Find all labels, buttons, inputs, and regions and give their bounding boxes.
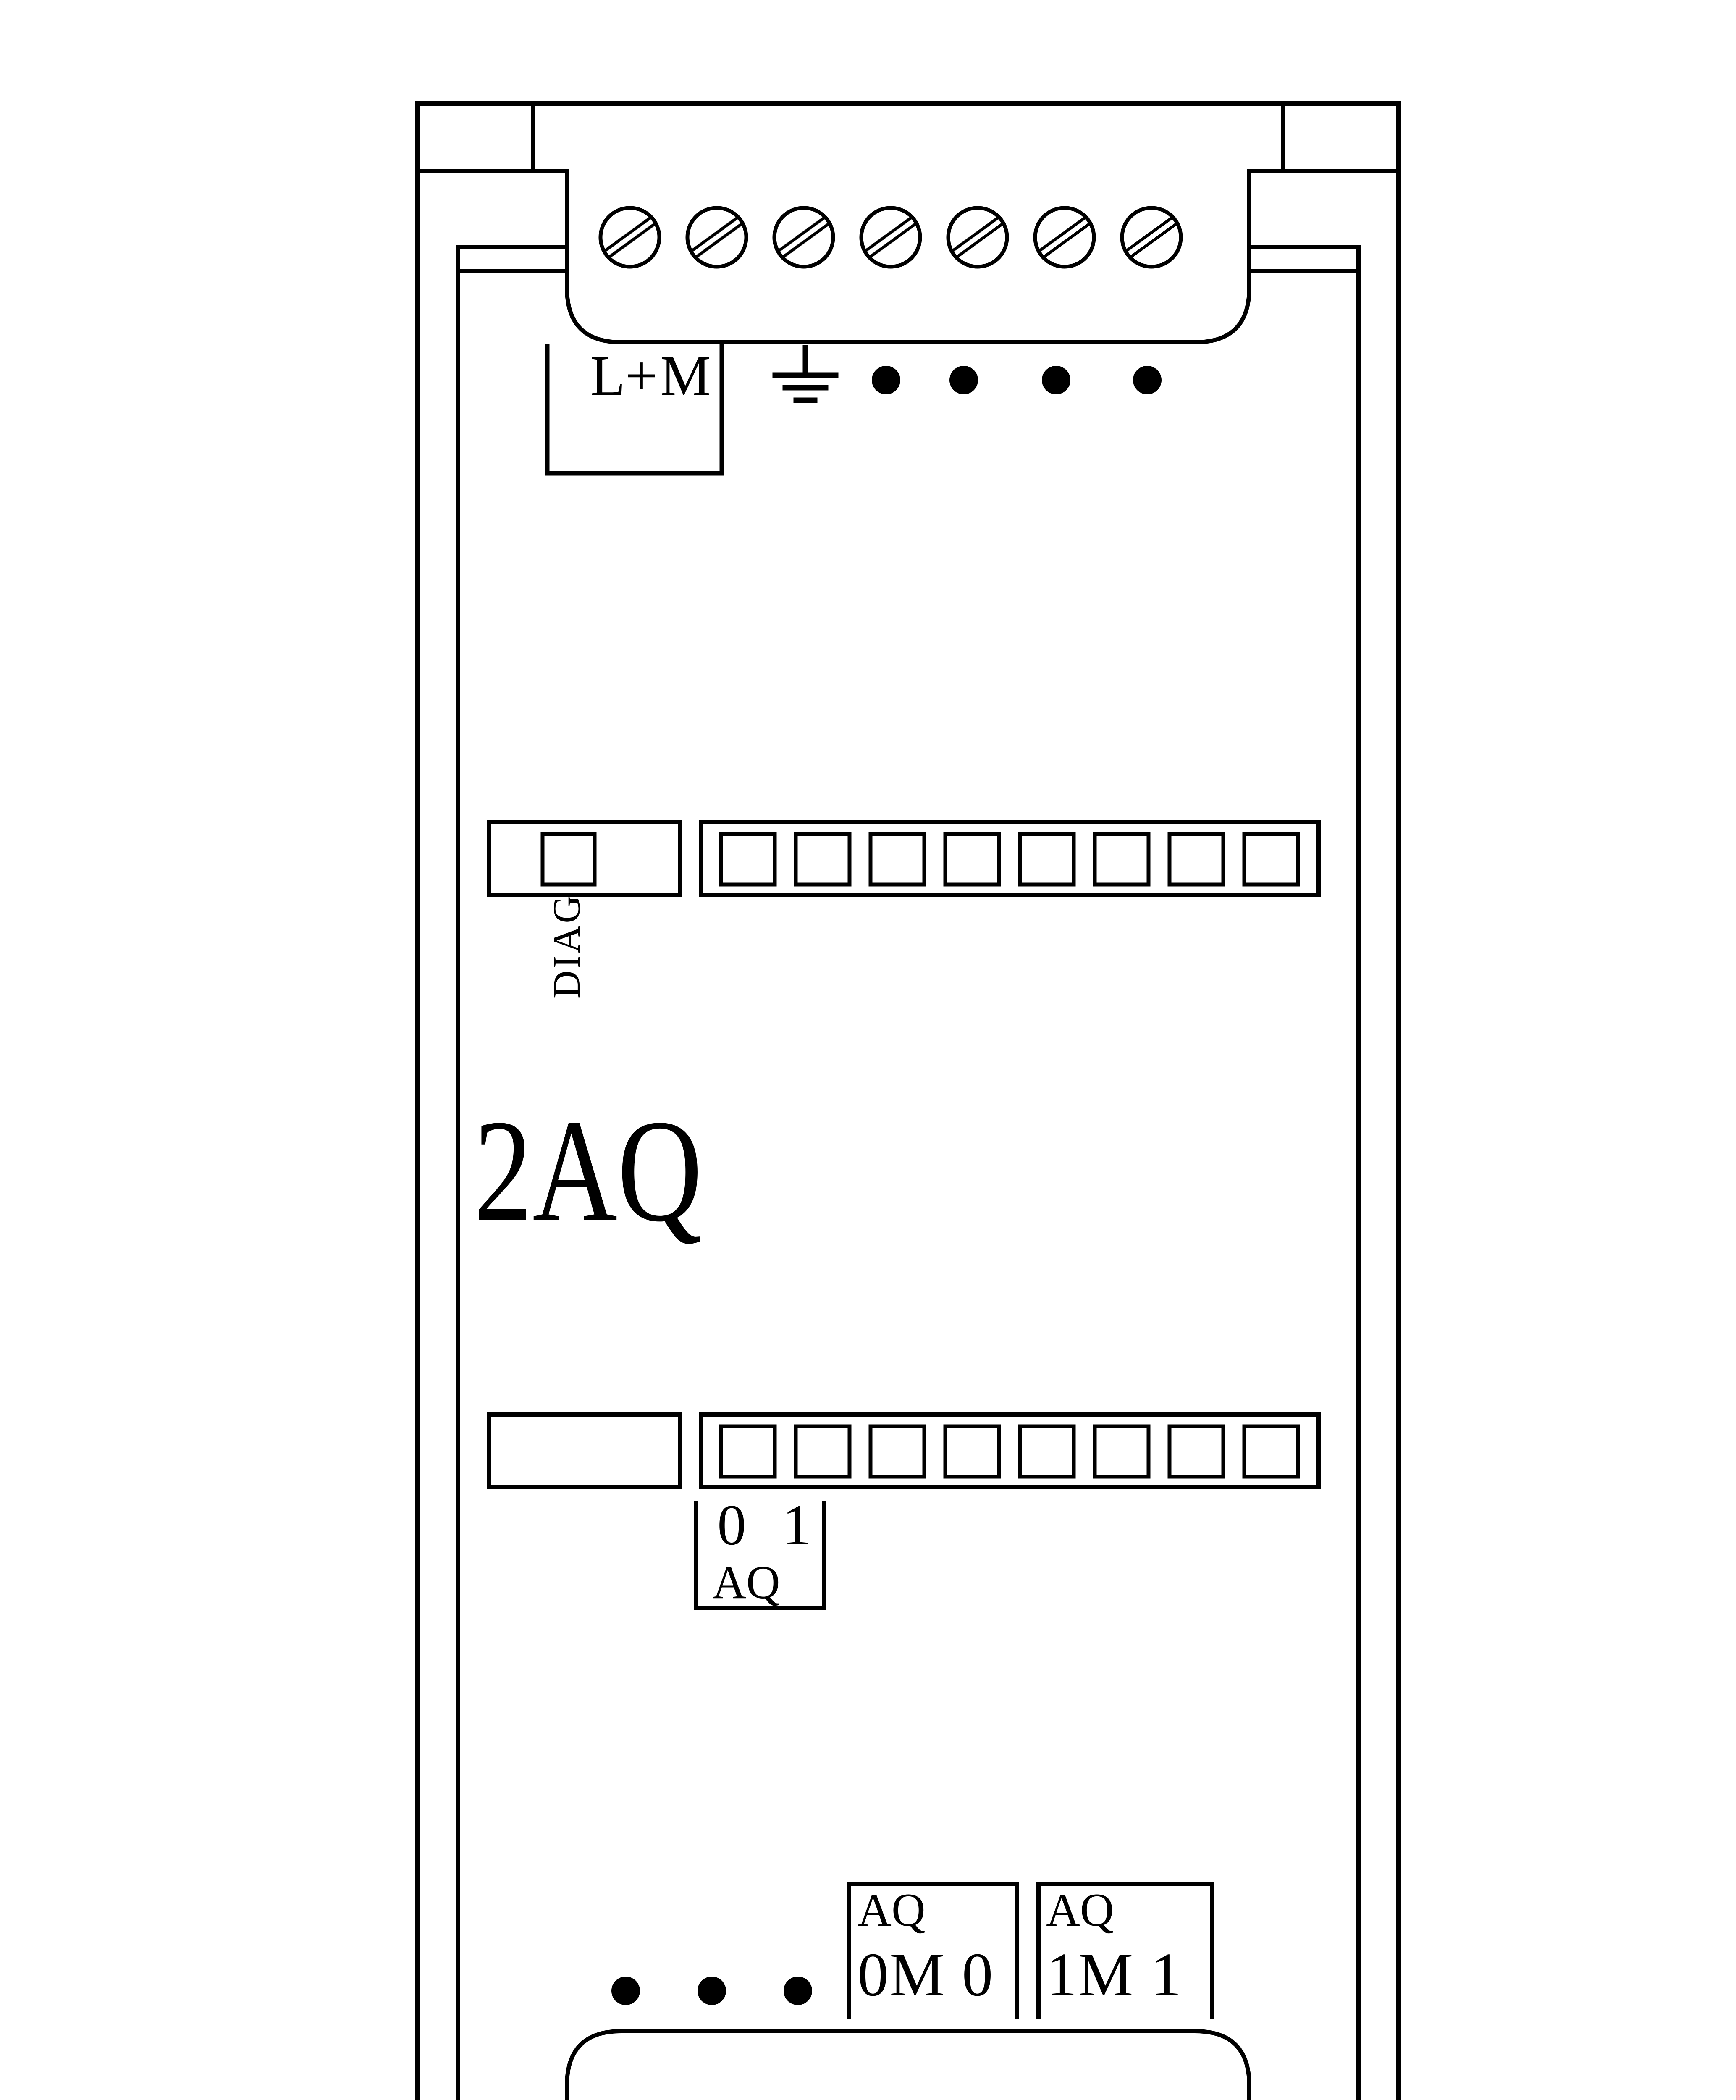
led-cell: [1020, 834, 1074, 885]
led-cell: [721, 1426, 775, 1477]
screw-terminal: [850, 196, 932, 278]
led-cell: [1170, 1426, 1223, 1477]
screw-terminal: [763, 196, 845, 278]
bottom-terminal-bay: [567, 2031, 1249, 2100]
led-cell: [1244, 1426, 1298, 1477]
module-line-art: [0, 0, 1736, 2100]
led-cell: [796, 1426, 850, 1477]
spare-led-box: [489, 1415, 680, 1487]
earth-ground-icon: [775, 348, 836, 400]
channel-0-digit: 0: [717, 1496, 746, 1554]
bottom-terminal-dots: [611, 1977, 812, 2005]
output1-group-label: AQ: [1046, 1887, 1114, 1934]
led-cell: [871, 1426, 924, 1477]
output0-group-label: AQ: [858, 1887, 926, 1934]
led-cells-row1: [721, 834, 1298, 885]
power-positive-label: L+: [590, 347, 658, 406]
led-cell: [1244, 834, 1298, 885]
terminal-dot: [872, 366, 900, 394]
power-terminal-labels: L+ M: [547, 347, 722, 406]
screw-terminal: [936, 196, 1019, 278]
led-cell: [1095, 834, 1149, 885]
diag-label: DIAG: [542, 895, 591, 996]
led-cell: [1170, 834, 1223, 885]
led-cell: [945, 1426, 999, 1477]
terminal-dot: [1133, 366, 1162, 394]
channel-1-digit: 1: [782, 1496, 811, 1554]
screw-terminal: [676, 196, 758, 278]
screw-terminal: [850, 2093, 932, 2100]
screw-terminal: [1110, 2093, 1193, 2100]
led-cell: [1095, 1426, 1149, 1477]
terminal-dot: [698, 1977, 726, 2005]
led-cell: [1020, 1426, 1074, 1477]
terminal-dot: [949, 366, 978, 394]
screw-terminal: [763, 2093, 845, 2100]
screw-terminal: [936, 2093, 1019, 2100]
screw-terminal: [1023, 2093, 1106, 2100]
wiring-diagram-page: L+ M DIAG 2AQ 0 1 AQ AQ 0M 0 AQ 1M 1 头条 …: [0, 0, 1736, 2100]
bottom-screw-terminals: [589, 2093, 1193, 2100]
power-common-label: M: [660, 347, 711, 406]
top-screw-terminals: [589, 196, 1193, 278]
terminal-dot: [611, 1977, 640, 2005]
output1-terminal-labels: 1M 1: [1046, 1944, 1183, 2006]
led-cell: [721, 834, 775, 885]
diag-led: [543, 834, 595, 885]
module-model-label: 2AQ: [474, 1097, 702, 1244]
channel-number-labels: 0 1: [696, 1496, 824, 1554]
led-cells-row2: [721, 1426, 1298, 1477]
led-cell: [871, 834, 924, 885]
screw-terminal: [589, 2093, 671, 2100]
terminal-dot: [1042, 366, 1070, 394]
led-cell: [796, 834, 850, 885]
screw-terminal: [676, 2093, 758, 2100]
screw-terminal: [1023, 196, 1106, 278]
screw-terminal: [1110, 196, 1193, 278]
output0-terminal-labels: 0M 0: [858, 1944, 994, 2006]
top-terminal-dots: [872, 366, 1162, 394]
terminal-dot: [784, 1977, 812, 2005]
channel-group-label: AQ: [712, 1559, 780, 1606]
led-cell: [945, 834, 999, 885]
top-terminal-bay: [567, 171, 1249, 342]
screw-terminal: [589, 196, 671, 278]
